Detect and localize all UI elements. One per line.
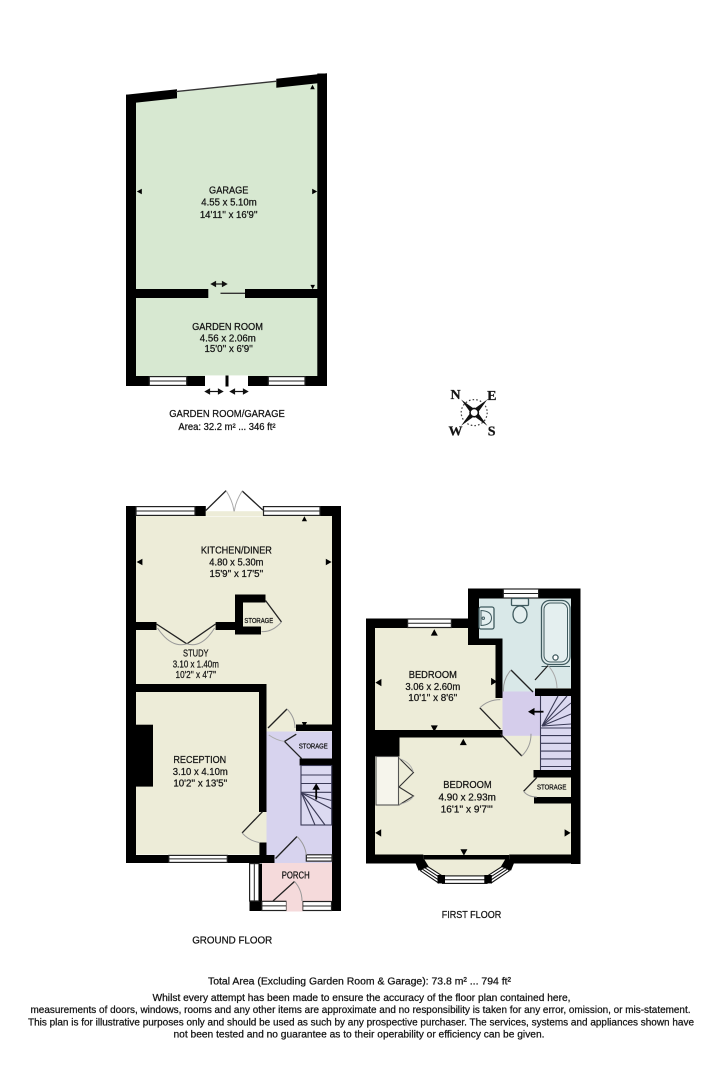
svg-text:BEDROOM: BEDROOM: [443, 780, 491, 791]
svg-text:14'11'' x 16'9'': 14'11'' x 16'9'': [200, 210, 258, 221]
svg-text:STORAGE: STORAGE: [299, 744, 328, 751]
svg-text:GARDEN ROOM: GARDEN ROOM: [192, 322, 263, 333]
svg-text:3.10 x 1.40m: 3.10 x 1.40m: [173, 659, 219, 670]
svg-text:FIRST FLOOR: FIRST FLOOR: [442, 910, 502, 921]
svg-text:15'9'' x 17'5'': 15'9'' x 17'5'': [210, 569, 264, 580]
svg-text:Area: 32.2 m² ... 346 ft²: Area: 32.2 m² ... 346 ft²: [178, 422, 276, 433]
svg-text:STUDY: STUDY: [183, 649, 209, 660]
svg-text:RECEPTION: RECEPTION: [173, 755, 226, 766]
svg-text:4.80 x 5.30m: 4.80 x 5.30m: [209, 558, 263, 569]
svg-text:STORAGE: STORAGE: [537, 785, 567, 792]
svg-text:W: W: [449, 425, 463, 440]
svg-text:4.90 x 2.93m: 4.90 x 2.93m: [439, 792, 496, 803]
svg-text:16'1'' x 9'7''': 16'1'' x 9'7''': [441, 804, 493, 815]
svg-text:15'0'' x 6'9'': 15'0'' x 6'9'': [205, 344, 254, 355]
svg-text:GARAGE: GARAGE: [209, 186, 249, 197]
svg-text:BEDROOM: BEDROOM: [409, 670, 457, 681]
svg-text:10'2'' x 13'5'': 10'2'' x 13'5'': [173, 779, 227, 790]
svg-text:GROUND FLOOR: GROUND FLOOR: [192, 936, 272, 947]
svg-text:KITCHEN/DINER: KITCHEN/DINER: [201, 545, 272, 556]
svg-text:Whilst every attempt has been: Whilst every attempt has been made to en…: [153, 993, 571, 1004]
svg-text:PORCH: PORCH: [282, 870, 310, 881]
svg-text:not been tested and no guarant: not been tested and no guarantee as to t…: [174, 1030, 545, 1041]
svg-text:4.55 x 5.10m: 4.55 x 5.10m: [201, 198, 256, 209]
svg-text:S: S: [488, 425, 496, 440]
svg-text:Total Area (Excluding Garden R: Total Area (Excluding Garden Room & Gara…: [208, 976, 512, 987]
svg-text:N: N: [450, 388, 460, 403]
svg-text:3.06 x 2.60m: 3.06 x 2.60m: [405, 682, 460, 693]
svg-text:This plan is for illustrative: This plan is for illustrative purposes o…: [28, 1017, 694, 1028]
svg-text:measurements of doors, windows: measurements of doors, windows, rooms an…: [31, 1005, 691, 1016]
svg-text:E: E: [487, 389, 496, 404]
svg-text:10'2'' x 4'7'': 10'2'' x 4'7'': [176, 670, 217, 681]
svg-text:GARDEN ROOM/GARAGE: GARDEN ROOM/GARAGE: [169, 409, 285, 420]
svg-text:STORAGE: STORAGE: [244, 618, 273, 625]
svg-text:4.56 x 2.06m: 4.56 x 2.06m: [200, 333, 256, 344]
svg-text:10'1'' x 8'6'': 10'1'' x 8'6'': [408, 693, 457, 704]
svg-text:3.10 x 4.10m: 3.10 x 4.10m: [173, 767, 228, 778]
